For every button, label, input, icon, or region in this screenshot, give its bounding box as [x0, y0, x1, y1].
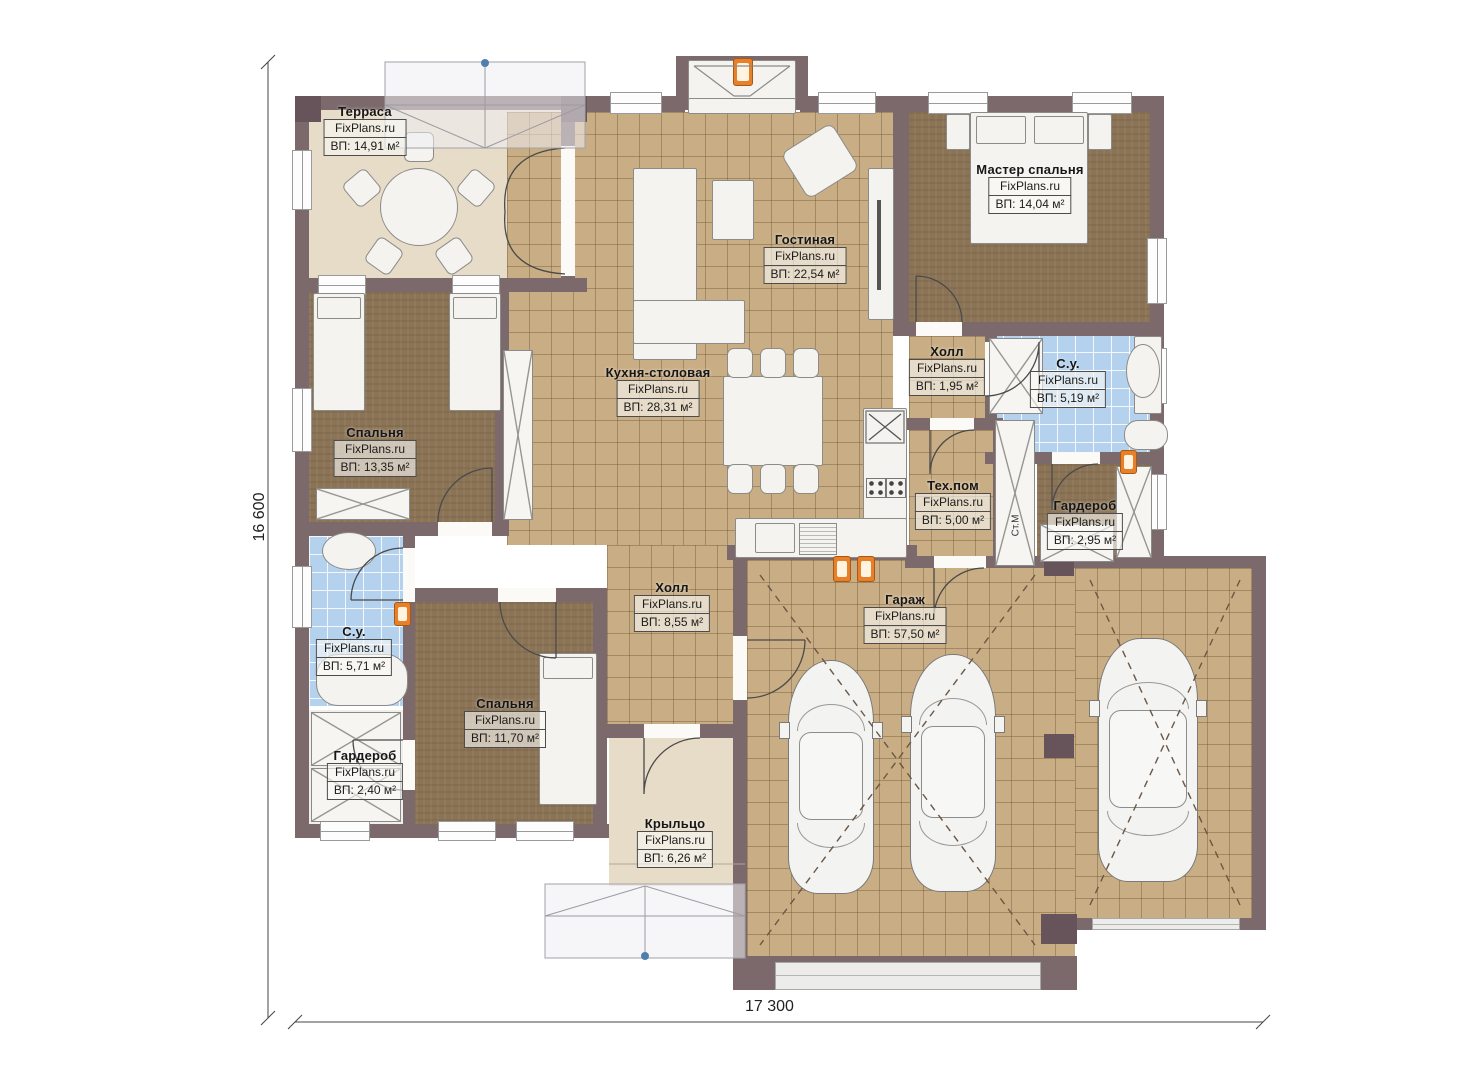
watermark: FixPlans.ru [764, 247, 847, 266]
room-name: Холл [634, 580, 710, 595]
fireplace-hearth [688, 98, 796, 114]
room-area: ВП: 57,50 м² [864, 625, 947, 644]
opening-bedroom2-door [498, 588, 556, 602]
opening-tech-door [930, 418, 974, 430]
watermark: FixPlans.ru [316, 639, 392, 658]
wall-fireplace-bay-left [676, 56, 688, 110]
dining-chair [793, 348, 819, 378]
watermark: FixPlans.ru [1030, 371, 1106, 390]
room-name: Холл [909, 344, 985, 359]
window [318, 275, 366, 295]
watermark: FixPlans.ru [864, 607, 947, 626]
opening-bedroom1-door [438, 522, 492, 536]
room-name: С.у. [316, 624, 392, 639]
dimension-height: 16 600 [251, 472, 269, 562]
car [910, 654, 996, 892]
window [292, 150, 312, 210]
room-name: Мастер спальня [976, 162, 1083, 177]
room-area: ВП: 5,00 м² [915, 511, 991, 530]
pillow [1034, 116, 1084, 144]
room-area: ВП: 14,04 м² [989, 195, 1072, 214]
room-area: ВП: 2,95 м² [1047, 531, 1123, 550]
floor-hall [607, 545, 733, 724]
watermark: FixPlans.ru [464, 711, 546, 730]
terrace-table [380, 168, 458, 246]
garage-extension-door [1092, 918, 1240, 930]
window [438, 821, 496, 841]
pillow [453, 297, 497, 319]
watermark: FixPlans.ru [634, 595, 710, 614]
room-area: ВП: 5,19 м² [1030, 389, 1106, 408]
car [788, 660, 874, 894]
room-name: Крыльцо [637, 816, 713, 831]
kitchen-counter-vertical [863, 408, 907, 520]
room-name: Тех.пом [915, 478, 991, 493]
room-label-kitchen: Кухня-столовая FixPlans.ru ВП: 28,31 м² [606, 365, 711, 417]
radiator-icon [394, 602, 411, 626]
opening-master-door [916, 322, 962, 336]
car [1098, 638, 1198, 882]
room-name: С.у. [1030, 356, 1106, 371]
window [452, 275, 500, 295]
room-area: ВП: 28,31 м² [617, 398, 700, 417]
room-area: ВП: 1,95 м² [909, 377, 985, 396]
terrace-chair [404, 132, 434, 162]
room-name: Спальня [334, 425, 417, 440]
fireplace-flame-icon [733, 58, 753, 86]
watermark: FixPlans.ru [637, 831, 713, 850]
watermark: FixPlans.ru [617, 380, 700, 399]
window [610, 92, 662, 114]
room-label-terrace: Терраса FixPlans.ru ВП: 14,91 м² [324, 104, 407, 156]
room-label-hall-small: Холл FixPlans.ru ВП: 1,95 м² [909, 344, 985, 396]
room-label-tech: Тех.пом FixPlans.ru ВП: 5,00 м² [915, 478, 991, 530]
dining-chair [760, 348, 786, 378]
post-garage-column [1044, 734, 1074, 758]
tv [877, 200, 881, 290]
opening-tech-garage-door [934, 556, 986, 568]
room-label-bath2: С.у. FixPlans.ru ВП: 5,19 м² [1030, 356, 1106, 408]
window [928, 92, 988, 114]
toilet [1124, 420, 1168, 450]
room-area: ВП: 22,54 м² [764, 265, 847, 284]
room-name: Гараж [864, 592, 947, 607]
pillow [976, 116, 1026, 144]
room-area: ВП: 11,70 м² [464, 729, 546, 748]
radiator-icon [833, 556, 851, 582]
opening-terrace-door [561, 146, 575, 276]
room-label-master: Мастер спальня FixPlans.ru ВП: 14,04 м² [976, 162, 1083, 214]
wall-extension-right [1252, 556, 1266, 930]
room-label-wardrobe1: Гардероб FixPlans.ru ВП: 2,40 м² [327, 748, 403, 800]
room-area: ВП: 13,35 м² [334, 458, 417, 477]
room-label-wardrobe2: Гардероб FixPlans.ru ВП: 2,95 м² [1047, 498, 1123, 550]
window [818, 92, 876, 114]
room-area: ВП: 6,26 м² [637, 849, 713, 868]
radiator-icon [1120, 450, 1137, 474]
nightstand [946, 114, 970, 150]
opening-hall-garage-door [733, 636, 747, 700]
wardrobe-cabinet [316, 488, 410, 520]
sink [1126, 344, 1160, 398]
coffee-table [712, 180, 754, 240]
closet-cabinet [503, 350, 533, 520]
window [1147, 238, 1167, 304]
room-name: Гостиная [764, 232, 847, 247]
dimension-width: 17 300 [745, 998, 794, 1016]
window [292, 388, 312, 452]
room-area: ВП: 5,71 м² [316, 657, 392, 676]
dining-chair [727, 348, 753, 378]
watermark: FixPlans.ru [334, 440, 417, 459]
window [516, 821, 574, 841]
watermark: FixPlans.ru [324, 119, 407, 138]
window [320, 821, 370, 841]
room-name: Гардероб [327, 748, 403, 763]
dishwasher [799, 523, 837, 555]
post-garage-junction [1041, 914, 1077, 944]
kitchen-sink [755, 523, 795, 553]
dining-chair [760, 464, 786, 494]
room-label-hall: Холл FixPlans.ru ВП: 8,55 м² [634, 580, 710, 632]
garage-door [775, 962, 1041, 990]
watermark: FixPlans.ru [909, 359, 985, 378]
dining-chair [793, 464, 819, 494]
sofa-chaise [633, 300, 745, 344]
opening-bath1-door [403, 548, 415, 602]
post-terrace-corner [295, 96, 321, 122]
room-area: ВП: 2,40 м² [327, 781, 403, 800]
window [1072, 92, 1132, 114]
radiator-icon [857, 556, 875, 582]
room-label-bedroom1: Спальня FixPlans.ru ВП: 13,35 м² [334, 425, 417, 477]
room-area: ВП: 14,91 м² [324, 137, 407, 156]
opening-porch-door [644, 724, 700, 738]
wall-left-outer [295, 292, 309, 838]
window [292, 566, 312, 628]
nightstand [1088, 114, 1112, 150]
room-area: ВП: 8,55 м² [634, 613, 710, 632]
room-name: Кухня-столовая [606, 365, 711, 380]
pillow [317, 297, 361, 319]
watermark: FixPlans.ru [1047, 513, 1123, 532]
opening-wardrobe2-door [1052, 452, 1100, 464]
room-name: Гардероб [1047, 498, 1123, 513]
dining-table [723, 376, 823, 466]
watermark: FixPlans.ru [989, 177, 1072, 196]
room-label-bedroom2: Спальня FixPlans.ru ВП: 11,70 м² [464, 696, 546, 748]
dining-chair [727, 464, 753, 494]
room-label-living: Гостиная FixPlans.ru ВП: 22,54 м² [764, 232, 847, 284]
sink [322, 532, 376, 570]
room-label-bath1: С.у. FixPlans.ru ВП: 5,71 м² [316, 624, 392, 676]
watermark: FixPlans.ru [327, 763, 403, 782]
wall-master-left [893, 96, 909, 336]
floor-plan-canvas: Ст.М [0, 0, 1474, 1080]
tv-console [868, 168, 894, 320]
post-terrace-corner [561, 96, 587, 122]
wall-garage-left-lower [733, 724, 747, 990]
room-label-porch: Крыльцо FixPlans.ru ВП: 6,26 м² [637, 816, 713, 868]
stove-burners [866, 478, 886, 498]
room-name: Терраса [324, 104, 407, 119]
opening-wardrobe1-door [403, 740, 415, 790]
room-label-garage: Гараж FixPlans.ru ВП: 57,50 м² [864, 592, 947, 644]
stove-burners [886, 478, 906, 498]
room-name: Спальня [464, 696, 546, 711]
pillow [543, 657, 593, 679]
washing-machine-label: Ст.М [1011, 506, 1022, 546]
wall-extension-top [1164, 556, 1264, 568]
watermark: FixPlans.ru [915, 493, 991, 512]
